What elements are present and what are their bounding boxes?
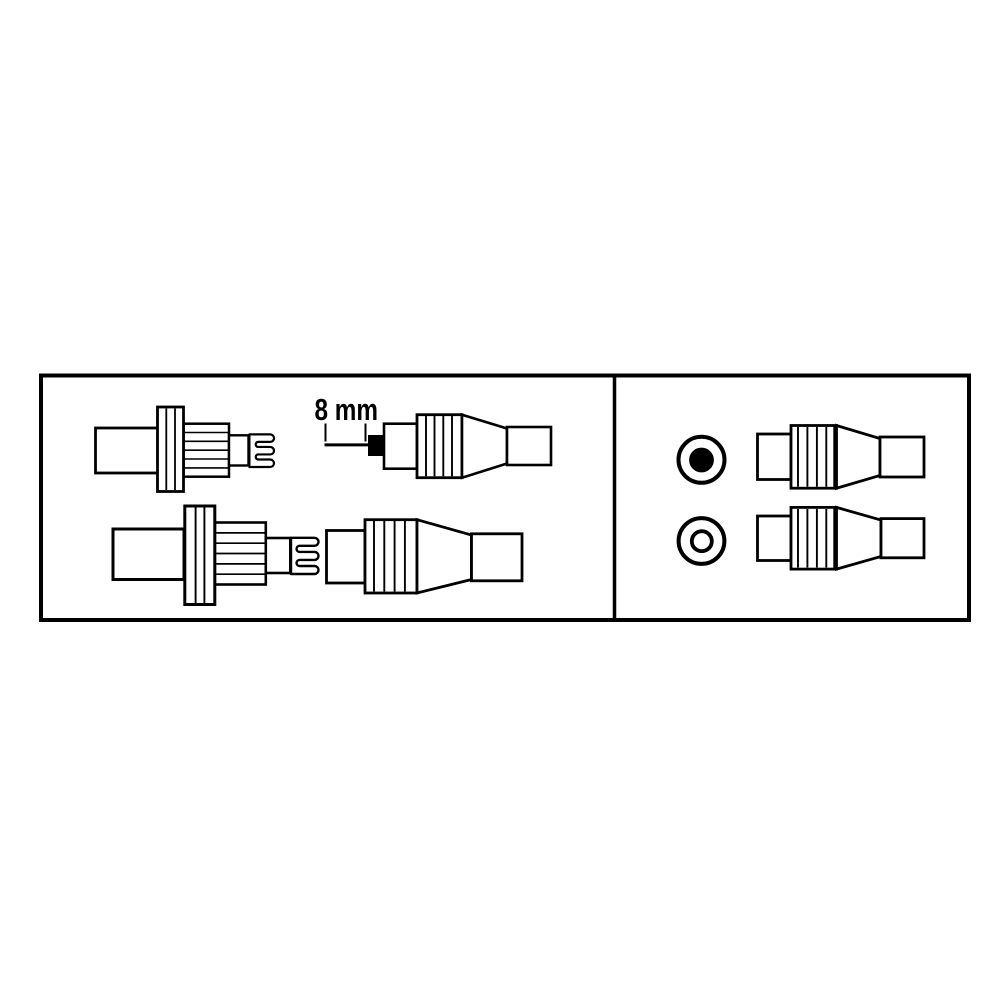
svg-text:8 mm: 8 mm: [315, 392, 379, 427]
